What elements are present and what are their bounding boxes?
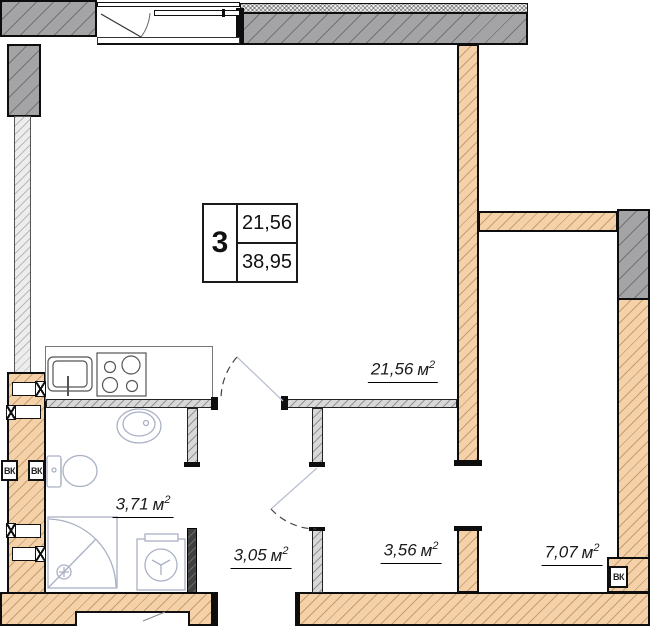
vent-shaft-label: ВК [1,460,18,481]
room-area-label-bathroom: 3,71м2 [113,494,174,518]
room-area-label-corridor: 3,56м2 [381,540,442,564]
bathroom-basin [117,409,161,443]
hallway-door [271,468,317,529]
room-area-label-bedroom: 7,07м2 [542,542,603,566]
living-room-door [221,357,283,401]
shower-tray [48,517,117,588]
apartment-number: 3 [204,205,238,281]
fixtures-layer [0,0,650,626]
stove [97,353,146,396]
entry-door-leaf [143,612,165,621]
apartment-areas: 21,56 38,95 [238,205,296,281]
total-area-value: 38,95 [238,244,296,281]
kitchen-sink [48,357,92,396]
balcony-door [101,13,150,37]
vent-shaft-label: ВК [28,460,45,481]
vent-shaft-label: ВК [609,566,628,588]
apartment-info-box: 3 21,56 38,95 [202,203,298,283]
living-area-value: 21,56 [238,205,296,244]
washing-machine [137,534,185,590]
toilet [47,456,97,488]
floor-plan-canvas: ВК ВК ВК [0,0,650,626]
room-area-label-hallway: 3,05м2 [231,545,292,569]
room-area-label-living: 21,56м2 [368,359,438,383]
